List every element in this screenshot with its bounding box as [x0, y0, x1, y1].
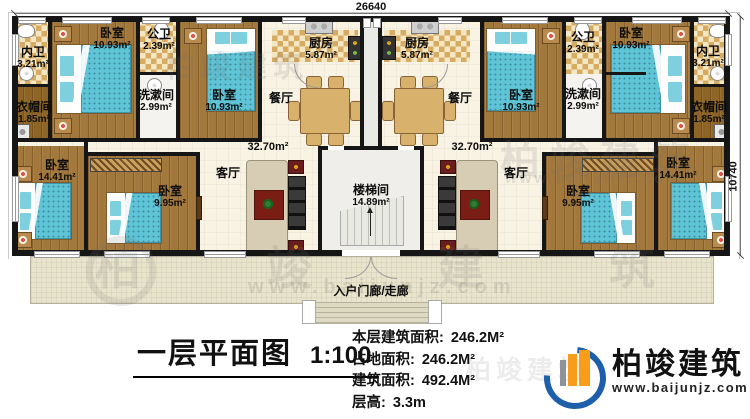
- room-label-wash-room-left: 洗漱间 2.99m²: [126, 89, 186, 114]
- room-label-bedroom-bottom-right-1: 卧室 9.95m²: [546, 185, 610, 210]
- dimension-line-top: [14, 13, 730, 14]
- nightstand: [184, 28, 202, 44]
- chair: [400, 76, 416, 89]
- dimension-top: 26640: [331, 1, 411, 13]
- nightstand: [54, 26, 72, 42]
- window: [664, 251, 710, 258]
- door-opening: [328, 146, 344, 150]
- stats-block: 本层建筑面积: 246.2M² 占地面积: 246.2M² 建筑面积: 492.…: [352, 328, 504, 414]
- room-label-bedroom-top-right-2: 卧室 10.93m²: [599, 27, 663, 52]
- brand-text: 柏竣建筑 www.baijunjz.com: [612, 349, 748, 396]
- room-area-living-right: 32.70m²: [444, 141, 500, 153]
- window: [34, 251, 80, 258]
- side-table: [440, 160, 456, 174]
- wardrobe: [90, 158, 162, 172]
- logo-building-bar-icon: [579, 350, 590, 386]
- sofa-dark: [438, 176, 456, 230]
- dimension-line-right: [740, 16, 741, 256]
- window: [502, 17, 548, 24]
- room-label-stairwell: 楼梯间 14.89m²: [339, 184, 403, 209]
- window: [196, 17, 242, 24]
- room-label-wash-room-right: 洗漱间 2.99m²: [553, 88, 613, 113]
- window: [594, 251, 640, 258]
- room-label-entrance: 入户门廊/走廊: [316, 285, 426, 298]
- room-label-bedroom-bottom-left-2: 卧室 9.95m²: [138, 185, 202, 210]
- wall: [360, 16, 364, 148]
- wall: [480, 16, 484, 142]
- wall: [420, 146, 424, 256]
- wall: [258, 16, 262, 142]
- room-label-bedroom-top-left-1: 卧室 10.93m²: [80, 27, 144, 52]
- wall: [12, 84, 52, 87]
- wall: [136, 72, 180, 75]
- chair: [400, 133, 416, 146]
- wall: [690, 84, 730, 87]
- room-label-inner-bath-right: 内卫 3.21m²: [685, 45, 731, 70]
- wall: [318, 146, 322, 256]
- room-label-living-right: 客厅: [492, 167, 540, 180]
- room-label-bedroom-bottom-left-1: 卧室 14.41m²: [25, 159, 89, 184]
- brand-logo-icon: [543, 342, 603, 402]
- dimension-right: 10740: [728, 150, 741, 204]
- entrance-step-post-left: [302, 300, 316, 324]
- brand-logo: 柏竣建筑 www.baijunjz.com: [543, 342, 748, 402]
- entrance-door-opening: [342, 250, 400, 256]
- room-label-cloak-room-right: 衣帽间 1.85m²: [683, 101, 735, 126]
- watermark-logo-circle: [86, 236, 156, 306]
- plant: [262, 198, 274, 210]
- room-label-bedroom-bottom-right-2: 卧室 14.41m²: [646, 157, 710, 182]
- stat-floor-area: 本层建筑面积: 246.2M²: [352, 328, 504, 350]
- brand-website: www.baijunjz.com: [612, 380, 748, 395]
- dining-table: [394, 88, 444, 134]
- chair: [306, 133, 322, 146]
- stairs-up-arrow: [370, 212, 371, 236]
- wall: [378, 16, 382, 148]
- room-label-living-left: 客厅: [204, 167, 252, 180]
- floor-shaft: [364, 22, 378, 148]
- room-label-dining-right: 餐厅: [438, 92, 482, 105]
- wall: [602, 72, 646, 75]
- window: [632, 17, 682, 24]
- dining-table: [300, 88, 350, 134]
- stat-land-area: 占地面积: 246.2M²: [352, 350, 504, 372]
- window: [62, 17, 112, 24]
- nightstand: [542, 28, 560, 44]
- room-label-public-bath-left: 公卫 2.39m²: [139, 28, 179, 53]
- window: [12, 176, 19, 222]
- wall: [542, 152, 658, 156]
- room-label-cloak-room-left: 衣帽间 1.85m²: [8, 101, 60, 126]
- room-label-inner-bath-left: 内卫 3.21m²: [10, 46, 56, 71]
- floor-plan-page: 柏竣建筑 柏竣建筑 www.baijunjz.com 柏竣建筑 www.baij…: [0, 0, 750, 419]
- window: [498, 251, 540, 258]
- room-area-living-left: 32.70m²: [240, 141, 296, 153]
- side-table: [288, 160, 304, 174]
- room-label-public-bath-right: 公卫 2.39m²: [563, 31, 603, 56]
- chair: [328, 133, 344, 146]
- toilet: [17, 24, 35, 38]
- nightstand: [672, 26, 690, 42]
- window: [698, 17, 726, 24]
- brand-name: 柏竣建筑: [612, 349, 744, 381]
- bed: [56, 44, 132, 114]
- room-label-dining-left: 餐厅: [259, 92, 303, 105]
- drawing-title-block: 一层平面图 1:100: [133, 330, 379, 378]
- shaft-window: [373, 18, 381, 28]
- wall: [12, 138, 262, 142]
- chair: [422, 133, 438, 146]
- room-label-kitchen-right: 厨房 5.87m²: [387, 37, 447, 62]
- wall: [84, 152, 200, 156]
- wall: [12, 16, 730, 22]
- window: [438, 17, 462, 24]
- wardrobe: [582, 158, 654, 172]
- wall: [480, 138, 730, 142]
- room-label-bedroom-top-right-1: 卧室 10.93m²: [489, 89, 553, 114]
- window: [204, 251, 246, 258]
- drawing-title: 一层平面图: [137, 330, 292, 372]
- window: [574, 17, 602, 24]
- room-label-bedroom-top-left-2: 卧室 10.93m²: [192, 89, 256, 114]
- logo-building-bar-icon: [568, 354, 577, 386]
- chair: [382, 101, 394, 121]
- plant: [468, 198, 480, 210]
- logo-building-bar-icon: [560, 360, 566, 386]
- entrance-steps: [314, 302, 430, 324]
- window: [282, 17, 306, 24]
- chair: [328, 76, 344, 89]
- entrance-step-post-right: [428, 300, 442, 324]
- stat-total-area: 建筑面积: 492.4M²: [352, 371, 504, 393]
- door-opening: [398, 146, 414, 150]
- sofa-dark: [288, 176, 306, 230]
- bed: [610, 44, 686, 114]
- room-label-kitchen-left: 厨房 5.87m²: [291, 37, 351, 62]
- window: [142, 17, 170, 24]
- shaft-window: [363, 18, 371, 28]
- window: [18, 17, 46, 24]
- stat-floor-height: 层高: 3.3m: [352, 393, 504, 415]
